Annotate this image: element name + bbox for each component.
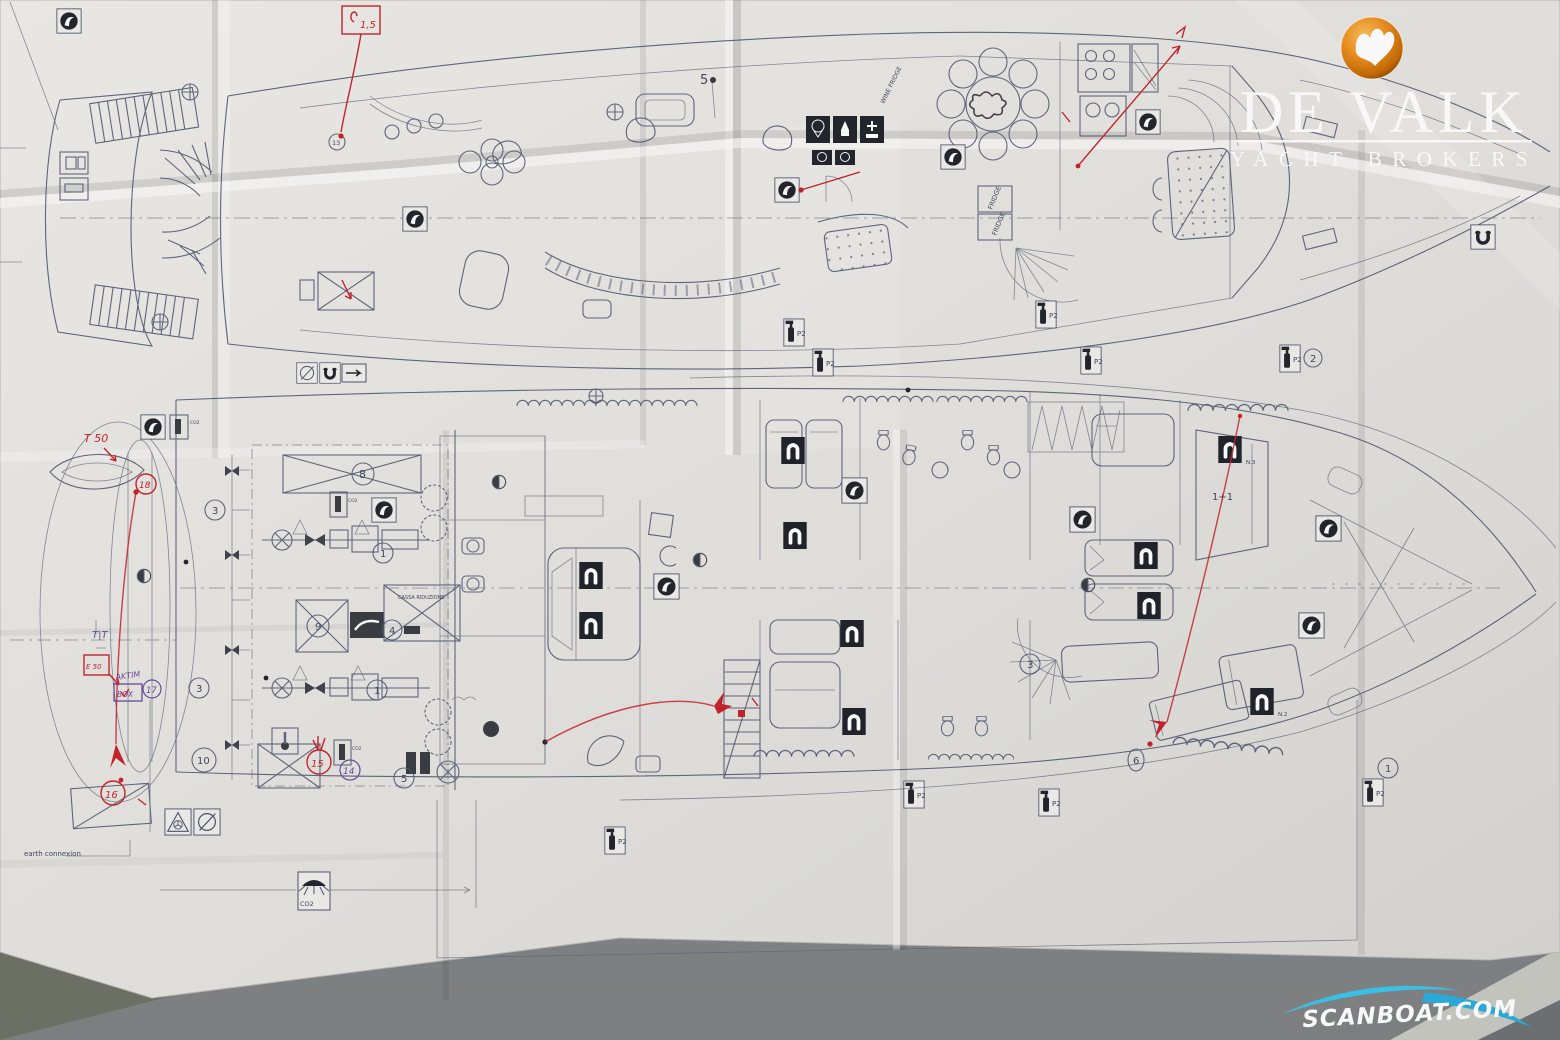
yacht-deckplan-photo: 5 FRIDGE FRIDGE WINE FRIDGE P2 P2 P2 P2 …: [0, 0, 1560, 1040]
photo-canvas: 5 FRIDGE FRIDGE WINE FRIDGE P2 P2 P2 P2 …: [0, 0, 1560, 1040]
photo-vignette: [0, 0, 1560, 1040]
